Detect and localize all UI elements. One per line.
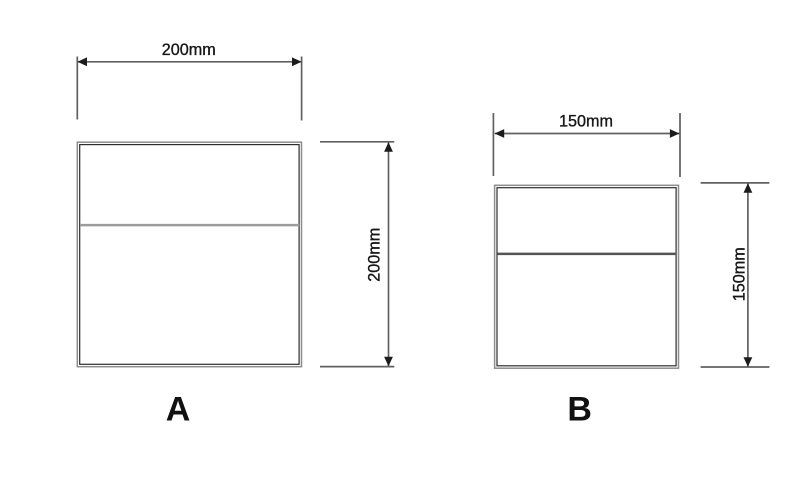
svg-text:200mm: 200mm (162, 41, 216, 59)
svg-text:B: B (567, 390, 592, 428)
svg-text:150mm: 150mm (731, 247, 749, 301)
svg-text:150mm: 150mm (559, 112, 613, 130)
svg-text:200mm: 200mm (366, 228, 384, 282)
svg-text:A: A (166, 391, 191, 429)
